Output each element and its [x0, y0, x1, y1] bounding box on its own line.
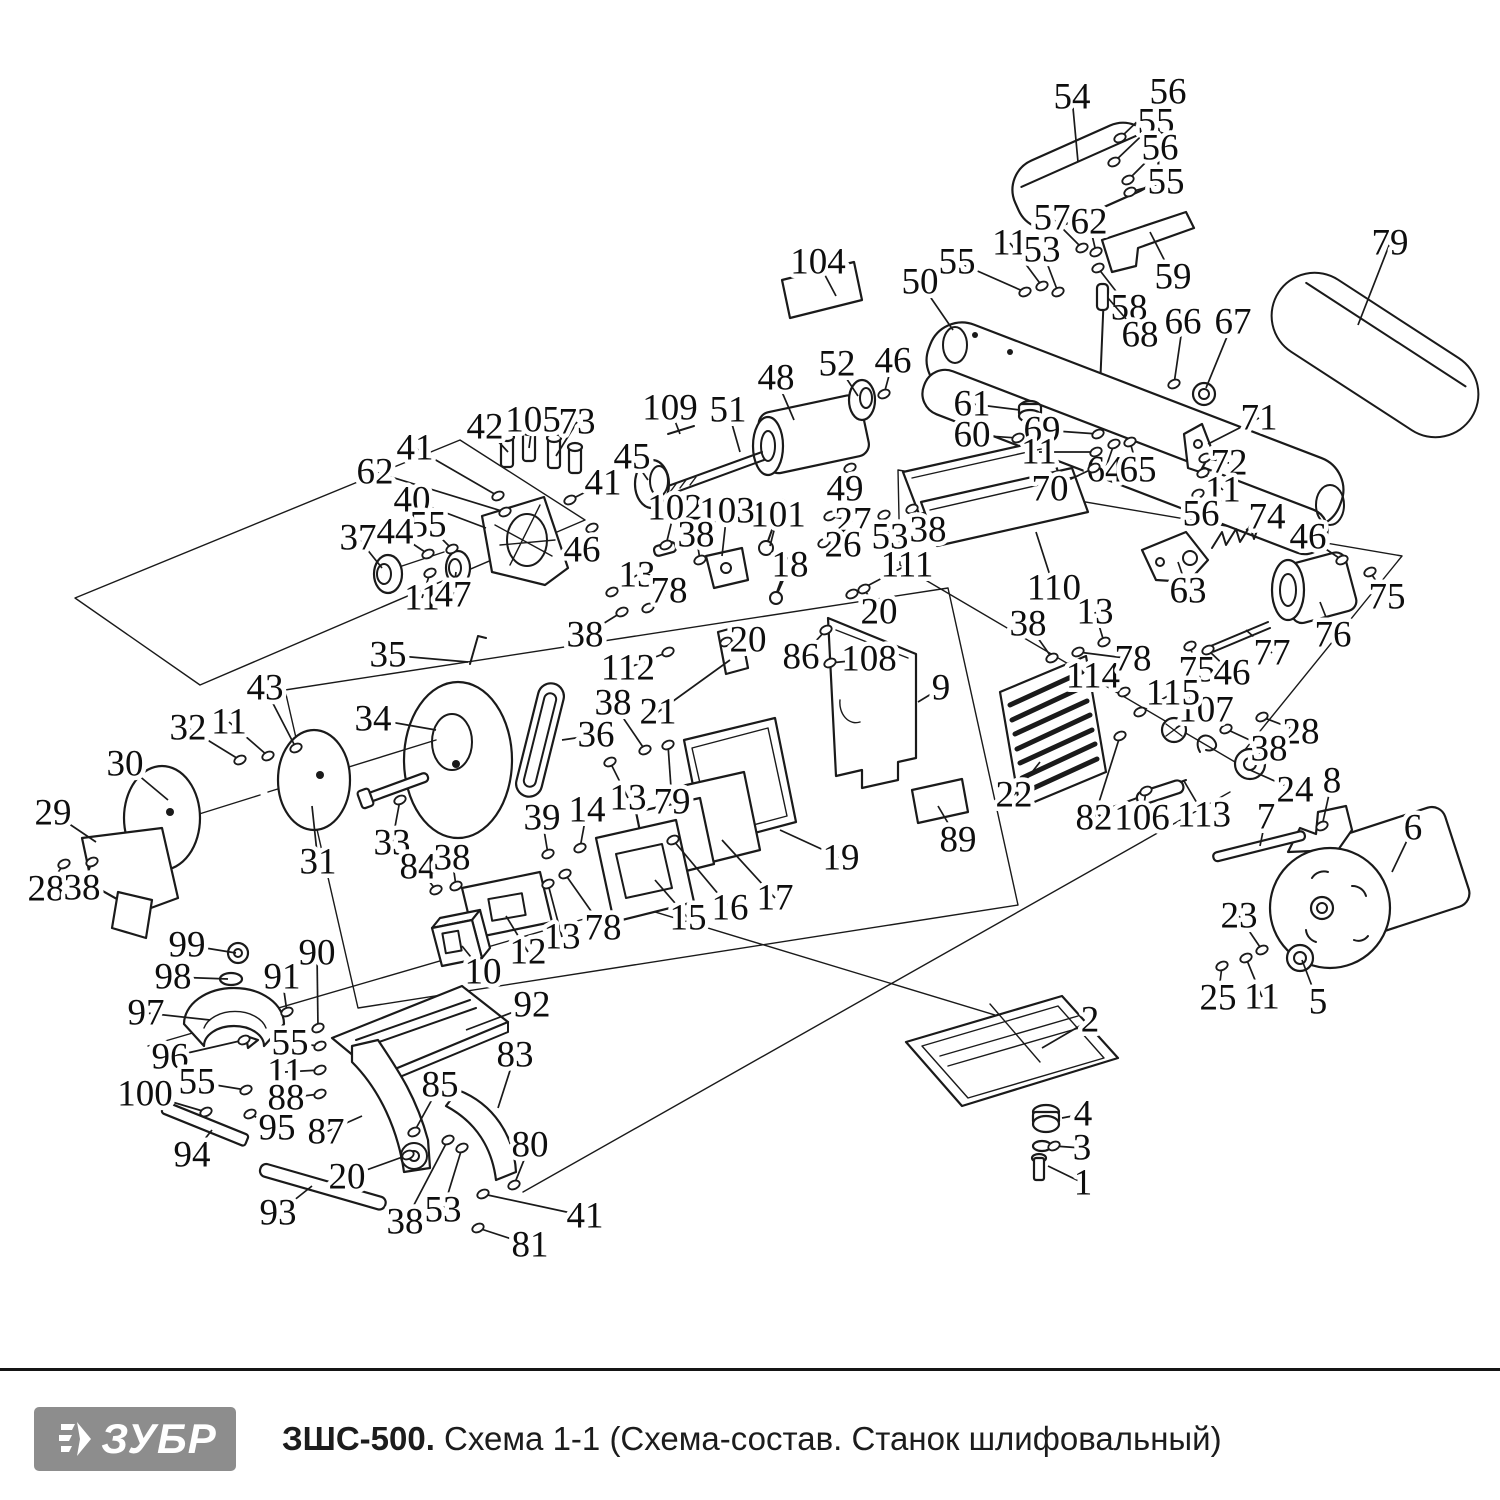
part-callout-5: 5 — [1309, 982, 1328, 1023]
fastener-glyph — [1167, 378, 1181, 390]
part-bolt-1 — [1032, 1154, 1046, 1180]
part-callout-66: 66 — [1165, 302, 1202, 343]
part-label-89 — [912, 779, 968, 823]
fastener-glyph — [199, 1106, 213, 1118]
part-callout-87: 87 — [308, 1112, 345, 1153]
part-callout-77: 77 — [1254, 633, 1291, 674]
fastener-glyph — [693, 554, 707, 566]
part-callout-65: 65 — [1120, 450, 1157, 491]
part-callout-75: 75 — [1369, 577, 1406, 618]
fastener-glyph — [661, 646, 675, 658]
part-callout-13: 13 — [610, 778, 647, 819]
part-callout-71: 71 — [1241, 398, 1278, 439]
part-callout-97: 97 — [128, 993, 165, 1034]
fastener-glyph — [558, 868, 572, 880]
zubr-arrow-icon — [53, 1418, 95, 1460]
part-callout-82: 82 — [1076, 798, 1113, 839]
part-callout-34: 34 — [355, 699, 392, 740]
part-callout-50: 50 — [902, 262, 939, 303]
part-callout-43: 43 — [247, 668, 284, 709]
part-callout-86: 86 — [783, 637, 820, 678]
fastener-glyph — [605, 586, 619, 598]
part-callout-109: 109 — [642, 388, 698, 429]
fastener-glyph — [1215, 960, 1229, 972]
part-callout-54: 54 — [1054, 77, 1091, 118]
part-callout-11: 11 — [992, 223, 1028, 264]
part-callout-10: 10 — [465, 952, 502, 993]
part-callout-80: 80 — [512, 1125, 549, 1166]
part-callout-111: 111 — [881, 545, 934, 586]
part-callout-20: 20 — [730, 620, 767, 661]
schema-subtitle: Схема 1-1 (Схема-состав. Станок шлифовал… — [435, 1420, 1222, 1457]
part-callout-46: 46 — [875, 341, 912, 382]
fastener-glyph — [1045, 652, 1059, 664]
part-callout-84: 84 — [400, 847, 437, 888]
part-callout-104: 104 — [790, 242, 846, 283]
part-callout-59: 59 — [1155, 257, 1192, 298]
part-callout-11: 11 — [211, 702, 247, 743]
part-callout-24: 24 — [1277, 770, 1314, 811]
fastener-glyph — [1051, 286, 1065, 298]
fastener-glyph — [243, 1108, 257, 1120]
part-callout-48: 48 — [758, 358, 795, 399]
part-callout-42: 42 — [467, 407, 504, 448]
part-callout-38: 38 — [678, 515, 715, 556]
part-callout-62: 62 — [357, 452, 394, 493]
fastener-glyph — [845, 588, 859, 600]
part-callout-28: 28 — [1283, 712, 1320, 753]
fastener-glyph — [1018, 286, 1032, 298]
fastener-glyph — [603, 756, 617, 768]
part-callout-79: 79 — [1372, 223, 1409, 264]
part-callout-79: 79 — [654, 782, 691, 823]
part-callout-37: 37 — [340, 518, 377, 559]
part-callout-78: 78 — [1115, 639, 1152, 680]
part-callout-41: 41 — [567, 1196, 604, 1237]
fastener-glyph — [441, 1134, 455, 1146]
part-callout-78: 78 — [585, 908, 622, 949]
fastener-glyph — [638, 744, 652, 756]
part-callout-53: 53 — [425, 1190, 462, 1231]
part-bearing-5 — [1287, 945, 1313, 971]
part-belt-36 — [513, 681, 566, 800]
fastener-glyph — [491, 490, 505, 502]
part-callout-78: 78 — [651, 571, 688, 612]
fastener-glyph — [239, 1084, 253, 1096]
fastener-glyph — [471, 1222, 485, 1234]
part-callout-23: 23 — [1221, 896, 1258, 937]
part-callout-7: 7 — [1257, 797, 1276, 838]
part-callout-55: 55 — [1148, 162, 1185, 203]
footer: ЗУБР ЗШС-500. Схема 1-1 (Схема-состав. С… — [0, 1396, 1500, 1482]
part-callout-62: 62 — [1071, 202, 1108, 243]
part-callout-31: 31 — [300, 842, 337, 883]
fastener-glyph — [393, 794, 407, 806]
fastener-glyph — [573, 842, 587, 854]
part-knob-67 — [1193, 383, 1215, 405]
page: 5456555655576259586811535550104796667717… — [0, 0, 1500, 1500]
part-callout-92: 92 — [514, 985, 551, 1026]
part-callout-16: 16 — [712, 888, 749, 929]
part-callout-6: 6 — [1404, 808, 1423, 849]
footer-divider — [0, 1368, 1500, 1371]
part-callout-90: 90 — [299, 933, 336, 974]
part-callout-55: 55 — [939, 242, 976, 283]
part-callout-29: 29 — [35, 793, 72, 834]
fastener-glyph — [233, 754, 247, 766]
fastener-glyph — [661, 739, 675, 751]
part-callout-8: 8 — [1323, 761, 1342, 802]
part-table-92 — [332, 986, 508, 1086]
part-callout-106: 106 — [1114, 798, 1170, 839]
part-callout-100: 100 — [117, 1074, 173, 1115]
part-callout-46: 46 — [564, 530, 601, 571]
part-callout-70: 70 — [1032, 469, 1069, 510]
part-callout-89: 89 — [940, 820, 977, 861]
part-callout-55: 55 — [179, 1062, 216, 1103]
part-callout-11: 11 — [1021, 432, 1057, 473]
part-callout-11: 11 — [1244, 977, 1280, 1018]
fastener-glyph — [476, 1188, 490, 1200]
part-callout-26: 26 — [825, 525, 862, 566]
part-callout-105: 105 — [505, 400, 561, 441]
fastener-glyph — [1113, 730, 1127, 742]
part-callout-25: 25 — [1200, 978, 1237, 1019]
fastener-glyph — [541, 878, 555, 890]
part-callout-63: 63 — [1170, 571, 1207, 612]
part-callout-17: 17 — [757, 878, 794, 919]
part-callout-83: 83 — [497, 1035, 534, 1076]
fastener-glyph — [507, 1179, 521, 1191]
fastener-glyph — [313, 1040, 327, 1052]
part-callout-91: 91 — [264, 957, 301, 998]
part-callout-20: 20 — [329, 1157, 366, 1198]
fastener-glyph — [449, 880, 463, 892]
part-callout-36: 36 — [578, 715, 615, 756]
part-callout-55: 55 — [410, 505, 447, 546]
part-callout-18: 18 — [772, 545, 809, 586]
part-callout-30: 30 — [107, 744, 144, 785]
part-callout-1: 1 — [1074, 1163, 1093, 1204]
fastener-glyph — [1035, 280, 1049, 292]
fastener-glyph — [615, 606, 629, 618]
part-callout-98: 98 — [155, 957, 192, 998]
part-callout-113: 113 — [1177, 795, 1231, 836]
part-callout-114: 114 — [1066, 656, 1120, 697]
part-callout-110: 110 — [1027, 568, 1081, 609]
schema-title: ЗШС-500. Схема 1-1 (Схема-состав. Станок… — [282, 1420, 1222, 1458]
part-callout-46: 46 — [1290, 517, 1327, 558]
fastener-glyph — [313, 1064, 327, 1076]
part-callout-67: 67 — [1215, 302, 1252, 343]
part-callout-35: 35 — [370, 635, 407, 676]
fastener-glyph — [541, 848, 555, 860]
part-callout-39: 39 — [524, 798, 561, 839]
part-callout-38: 38 — [1010, 604, 1047, 645]
fastener-glyph — [1255, 711, 1269, 723]
part-foot-4 — [1033, 1105, 1059, 1132]
part-callout-73: 73 — [559, 402, 596, 443]
part-pulley-37 — [374, 555, 402, 593]
part-callout-52: 52 — [819, 344, 856, 385]
fastener-glyph — [1097, 636, 1111, 648]
part-callout-44: 44 — [377, 512, 414, 553]
fastener-glyph — [877, 388, 891, 400]
part-callout-41: 41 — [397, 428, 434, 469]
part-callout-85: 85 — [422, 1065, 459, 1106]
part-callout-21: 21 — [640, 692, 677, 733]
part-callout-60: 60 — [954, 415, 991, 456]
part-callout-101: 101 — [750, 495, 806, 536]
part-callout-68: 68 — [1122, 315, 1159, 356]
part-callout-94: 94 — [174, 1135, 211, 1176]
part-callout-28: 28 — [28, 869, 65, 910]
part-callout-22: 22 — [996, 775, 1033, 816]
part-belt-79 — [1255, 256, 1495, 453]
part-callout-47: 47 — [435, 575, 472, 616]
part-callout-38: 38 — [434, 838, 471, 879]
part-callout-13: 13 — [1077, 592, 1114, 633]
brand-name: ЗУБР — [101, 1418, 217, 1460]
part-callout-95: 95 — [259, 1108, 296, 1149]
part-callout-9: 9 — [932, 668, 951, 709]
fastener-glyph — [1089, 246, 1103, 258]
fastener-glyph — [455, 1142, 469, 1154]
part-callout-19: 19 — [823, 838, 860, 879]
part-callout-46: 46 — [1214, 653, 1251, 694]
fastener-glyph — [1239, 952, 1253, 964]
part-callout-38: 38 — [567, 615, 604, 656]
part-disc-31 — [278, 730, 350, 830]
part-callout-38: 38 — [64, 868, 101, 909]
fastener-glyph — [1091, 262, 1105, 274]
part-callout-38: 38 — [1251, 729, 1288, 770]
part-callout-93: 93 — [260, 1193, 297, 1234]
part-callout-14: 14 — [569, 790, 606, 831]
part-callout-108: 108 — [841, 639, 897, 680]
part-callout-115: 115 — [1146, 673, 1200, 714]
part-callout-38: 38 — [387, 1202, 424, 1243]
fastener-glyph — [1255, 944, 1269, 956]
fastener-glyph — [313, 1088, 327, 1100]
part-callout-56: 56 — [1183, 494, 1220, 535]
part-callout-2: 2 — [1081, 1000, 1100, 1041]
part-callout-76: 76 — [1315, 615, 1352, 656]
part-callout-74: 74 — [1249, 497, 1286, 538]
part-motor-6 — [1212, 803, 1473, 971]
fastener-glyph — [311, 1022, 325, 1034]
zubr-logo: ЗУБР — [34, 1407, 236, 1471]
part-callout-51: 51 — [710, 390, 747, 431]
part-callout-41: 41 — [585, 463, 622, 504]
part-callout-15: 15 — [670, 898, 707, 939]
part-callout-20: 20 — [861, 592, 898, 633]
part-callout-12: 12 — [510, 932, 547, 973]
part-callout-53: 53 — [1024, 230, 1061, 271]
model-number: ЗШС-500. — [282, 1420, 435, 1457]
exploded-parts-diagram: 5456555655576259586811535550104796667717… — [0, 0, 1500, 1368]
part-callout-13: 13 — [544, 917, 581, 958]
part-callout-81: 81 — [512, 1225, 549, 1266]
fastener-glyph — [563, 494, 577, 506]
part-callout-32: 32 — [170, 708, 207, 749]
